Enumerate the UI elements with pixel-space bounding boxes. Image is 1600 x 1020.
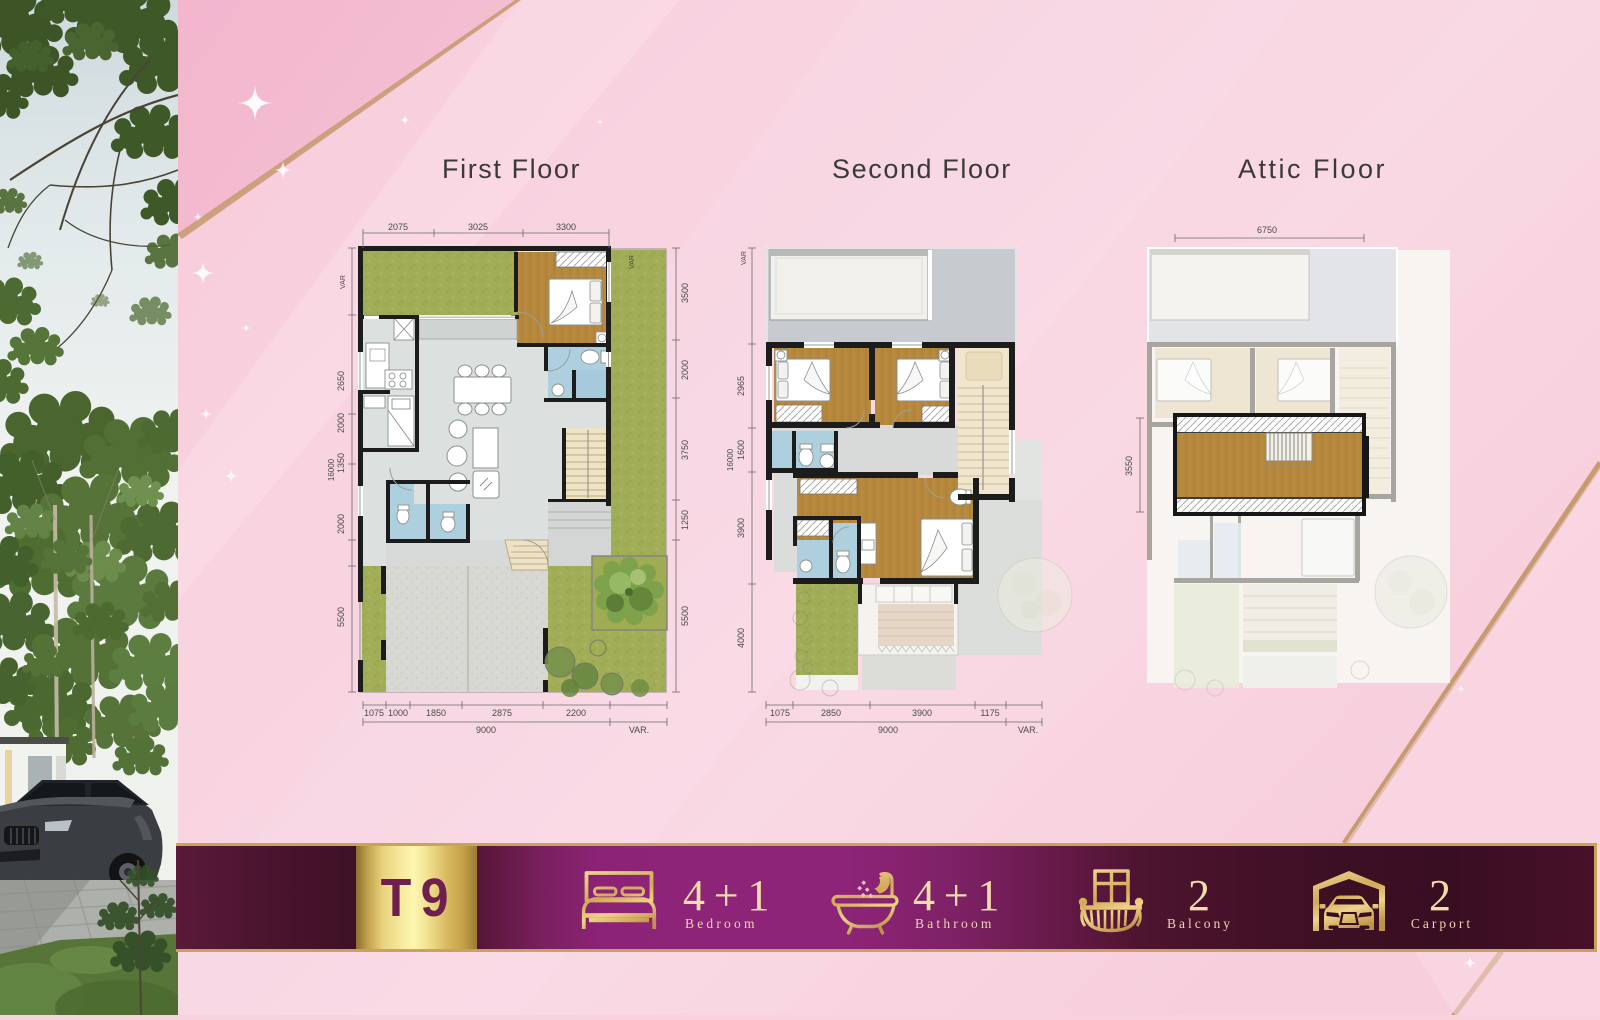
svg-text:2850: 2850: [821, 708, 841, 718]
svg-text:3750: 3750: [680, 440, 690, 460]
svg-text:1075: 1075: [364, 708, 384, 718]
svg-text:3025: 3025: [468, 222, 488, 232]
svg-text:1350: 1350: [336, 453, 346, 473]
svg-text:VAR.: VAR.: [629, 725, 649, 735]
svg-text:2000: 2000: [336, 413, 346, 433]
svg-text:VAR: VAR: [629, 255, 636, 269]
svg-text:1175: 1175: [980, 708, 999, 718]
svg-text:1250: 1250: [680, 510, 690, 530]
svg-text:3300: 3300: [556, 222, 576, 232]
svg-text:6750: 6750: [1257, 225, 1277, 235]
svg-text:2875: 2875: [492, 708, 512, 718]
svg-text:3550: 3550: [1124, 456, 1134, 476]
svg-text:9000: 9000: [476, 725, 496, 735]
svg-text:2075: 2075: [388, 222, 408, 232]
svg-text:2650: 2650: [336, 371, 346, 391]
svg-text:4000: 4000: [736, 628, 746, 648]
svg-text:1850: 1850: [426, 708, 446, 718]
svg-text:2000: 2000: [680, 360, 690, 380]
svg-text:1000: 1000: [388, 708, 408, 718]
svg-text:9000: 9000: [878, 725, 898, 735]
svg-text:3900: 3900: [912, 708, 932, 718]
svg-text:16000: 16000: [726, 448, 735, 471]
svg-text:VAR: VAR: [340, 275, 347, 289]
svg-text:1600: 1600: [736, 440, 746, 460]
svg-text:VAR.: VAR.: [1018, 725, 1038, 735]
svg-text:3900: 3900: [736, 518, 746, 538]
svg-text:2200: 2200: [566, 708, 586, 718]
svg-text:VAR: VAR: [741, 251, 748, 265]
svg-text:1075: 1075: [770, 708, 790, 718]
svg-text:5500: 5500: [336, 607, 346, 627]
svg-text:3500: 3500: [680, 283, 690, 303]
svg-text:16000: 16000: [327, 458, 336, 481]
svg-text:2965: 2965: [736, 376, 746, 396]
svg-text:2000: 2000: [336, 514, 346, 534]
svg-text:5500: 5500: [680, 606, 690, 626]
